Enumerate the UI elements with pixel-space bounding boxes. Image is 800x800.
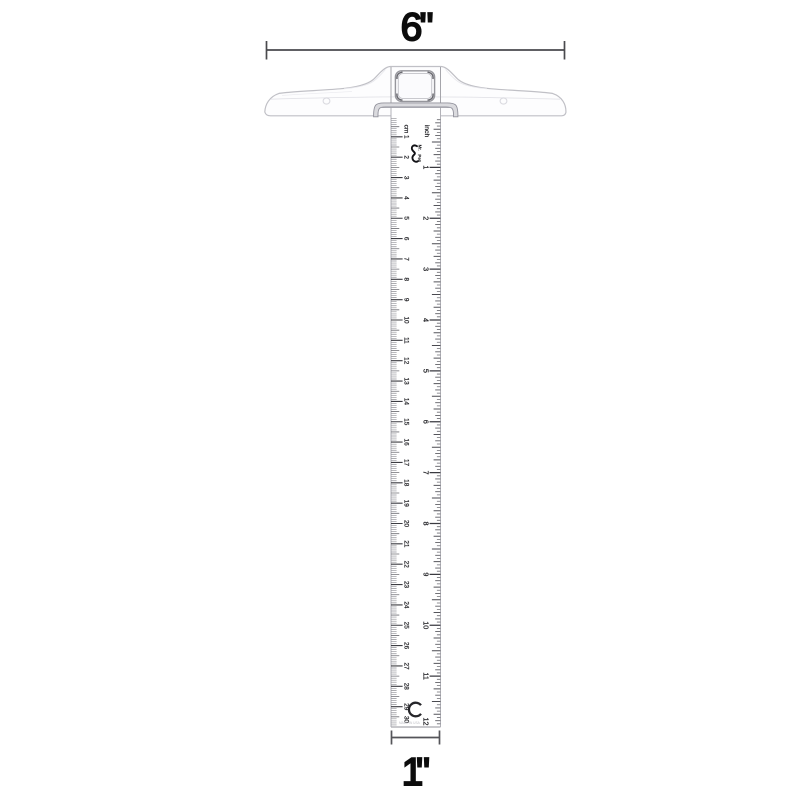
svg-text:12: 12 [421, 718, 430, 726]
svg-text:1: 1 [402, 135, 409, 139]
svg-text:15: 15 [402, 418, 409, 426]
svg-text:10: 10 [402, 316, 409, 324]
svg-text:3: 3 [402, 176, 409, 180]
svg-text:1: 1 [421, 165, 430, 169]
svg-text:18: 18 [402, 479, 409, 487]
svg-text:19: 19 [402, 500, 409, 508]
svg-text:4: 4 [402, 196, 409, 200]
svg-text:": " [420, 6, 434, 49]
svg-text:8: 8 [402, 278, 409, 282]
svg-text:24: 24 [402, 601, 409, 609]
svg-text:20: 20 [402, 520, 409, 528]
svg-text:6: 6 [421, 420, 430, 424]
svg-text:7: 7 [421, 471, 430, 475]
svg-text:16: 16 [402, 439, 409, 447]
svg-text:Pen: Pen [417, 154, 422, 162]
svg-text:MADE IN USA: MADE IN USA [399, 721, 421, 725]
svg-text:25: 25 [402, 622, 409, 630]
svg-text:2: 2 [421, 216, 430, 220]
svg-text:cm: cm [403, 125, 410, 134]
svg-text:27: 27 [402, 662, 409, 670]
svg-text:": " [416, 751, 430, 794]
svg-text:inch: inch [423, 125, 430, 138]
svg-text:17: 17 [402, 459, 409, 467]
svg-text:Mr.: Mr. [418, 145, 423, 151]
svg-text:5: 5 [421, 369, 430, 373]
svg-text:7: 7 [402, 257, 409, 261]
svg-text:13: 13 [402, 378, 409, 386]
svg-text:9: 9 [402, 298, 409, 302]
svg-text:4: 4 [421, 318, 430, 322]
svg-text:21: 21 [402, 540, 409, 548]
svg-text:6: 6 [402, 237, 409, 241]
svg-text:8: 8 [421, 522, 430, 526]
svg-text:11: 11 [402, 337, 409, 344]
svg-text:11: 11 [421, 672, 430, 679]
svg-text:12: 12 [402, 357, 409, 365]
svg-text:3: 3 [421, 267, 430, 271]
svg-text:5: 5 [402, 216, 409, 220]
svg-text:23: 23 [402, 581, 409, 589]
svg-text:14: 14 [402, 398, 409, 406]
svg-text:10: 10 [421, 621, 430, 629]
svg-text:28: 28 [402, 683, 409, 691]
svg-text:9: 9 [421, 572, 430, 576]
svg-text:22: 22 [402, 561, 409, 569]
svg-text:2: 2 [402, 155, 409, 159]
svg-text:26: 26 [402, 642, 409, 650]
